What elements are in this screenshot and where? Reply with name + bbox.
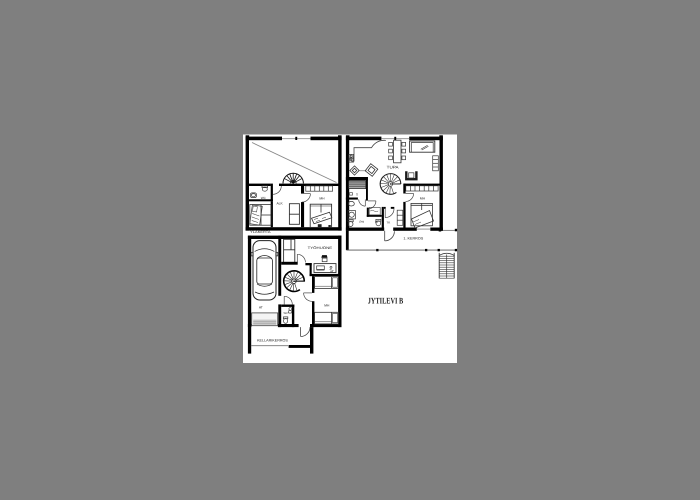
svg-text:KELLARIKERROS: KELLARIKERROS <box>257 338 288 342</box>
svg-text:MH: MH <box>324 304 330 308</box>
svg-text:TK: TK <box>386 220 390 224</box>
svg-text:1. KERROS: 1. KERROS <box>403 237 423 241</box>
svg-text:AT: AT <box>259 306 263 310</box>
svg-text:WC: WC <box>261 196 267 200</box>
svg-text:ALK: ALK <box>276 201 283 205</box>
svg-text:MH: MH <box>420 197 426 201</box>
svg-text:JYTILEVI B: JYTILEVI B <box>368 295 404 305</box>
svg-text:YLÄKERTA: YLÄKERTA <box>250 230 271 234</box>
svg-text:TYÖHUONE: TYÖHUONE <box>308 246 333 250</box>
svg-text:WC: WC <box>284 312 289 315</box>
svg-text:MH: MH <box>319 197 325 201</box>
svg-text:PH: PH <box>359 220 364 224</box>
svg-text:TUPA: TUPA <box>387 164 399 169</box>
svg-text:ET: ET <box>375 220 379 224</box>
svg-text:S: S <box>356 193 358 197</box>
